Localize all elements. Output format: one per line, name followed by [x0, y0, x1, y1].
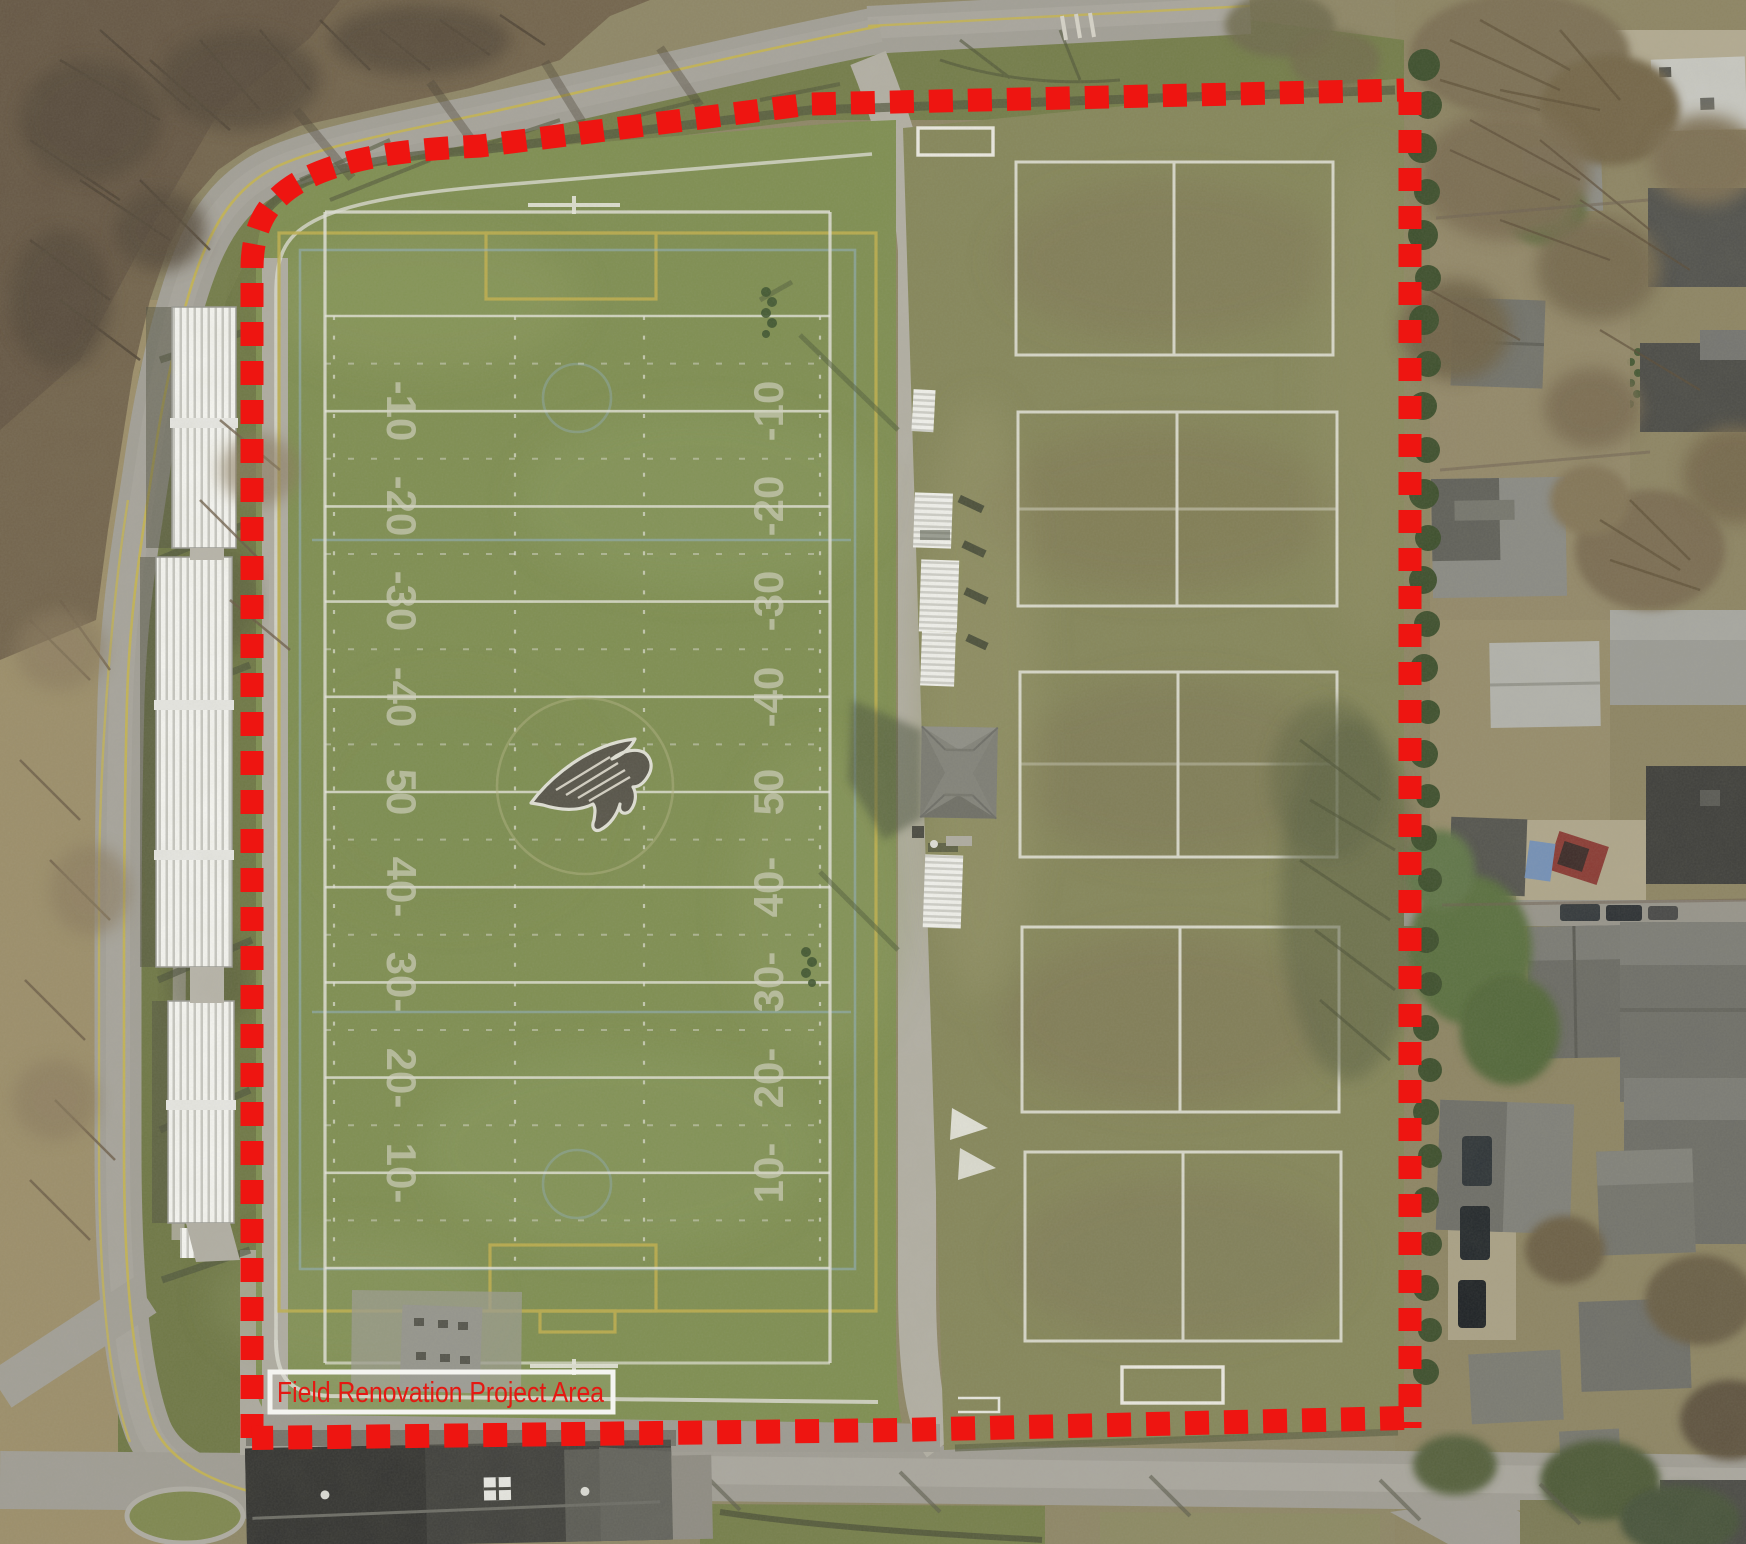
svg-text:Field Renovation Project Area: Field Renovation Project Area: [277, 1377, 605, 1409]
